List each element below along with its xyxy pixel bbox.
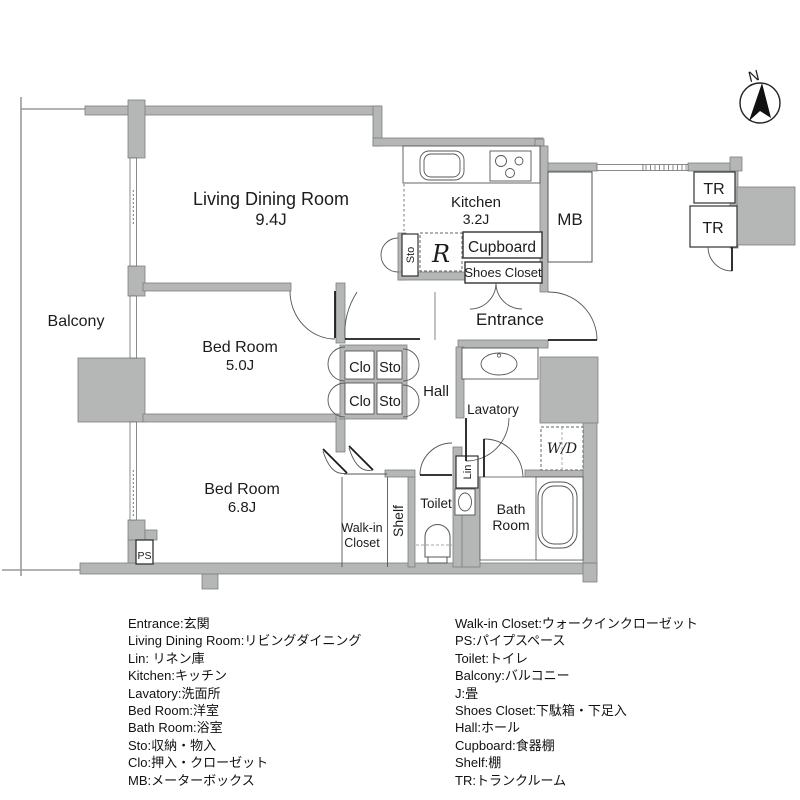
bathroom-label-1: Bath	[497, 501, 526, 517]
bedroom5-size: 5.0J	[226, 357, 254, 374]
legend-item: Balcony:バルコニー	[455, 667, 698, 684]
legend-item: Bath Room:浴室	[128, 719, 361, 736]
shoes-closet-label: Shoes Closet	[464, 265, 542, 280]
hand-basin-icon	[455, 489, 475, 515]
mb-label: MB	[557, 210, 583, 229]
legend-left-column: Entrance:玄関 Living Dining Room:リビングダイニング…	[128, 615, 361, 789]
legend-item: Hall:ホール	[455, 719, 698, 736]
living-dining-label: Living Dining Room	[193, 189, 349, 209]
legend-item: Sto:収納・物入	[128, 737, 361, 754]
entrance-label: Entrance	[476, 310, 544, 329]
trunk-room-gray-block	[737, 187, 795, 245]
compass-north-label: N	[747, 67, 762, 86]
legend-item: Shoes Closet:下駄箱・下足入	[455, 702, 698, 719]
clo-label-top: Clo	[349, 360, 371, 376]
bedroom6-size: 6.8J	[228, 499, 256, 516]
floor-plan-page: Balcony Living Dining Room 9.4J Kitchen …	[0, 0, 800, 800]
refrigerator-label: R	[431, 240, 450, 268]
sto-label-top: Sto	[379, 360, 401, 376]
trunk-room-door-arc	[708, 247, 732, 271]
balcony-outline	[2, 97, 85, 576]
bathroom-label-2: Room	[492, 517, 529, 533]
legend-item: Shelf:棚	[455, 754, 698, 771]
legend-item: Lavatory:洗面所	[128, 685, 361, 702]
kitchen-sto-door-arc	[381, 238, 398, 255]
compass: N	[740, 67, 780, 123]
toilet-icon	[425, 525, 450, 564]
shoes-closet-door-arc	[470, 283, 496, 309]
living-dining-size: 9.4J	[255, 211, 286, 229]
shoes-closet-door-arc	[496, 283, 522, 309]
legend-item: Living Dining Room:リビングダイニング	[128, 632, 361, 649]
bedroom5-door-arc	[290, 291, 335, 339]
lavatory-label: Lavatory	[467, 402, 519, 417]
legend-item: Cupboard:食器棚	[455, 737, 698, 754]
kitchen-sto-label: Sto	[405, 247, 417, 264]
ps-label: PS	[137, 550, 151, 562]
legend-item: Clo:押入・クローゼット	[128, 754, 361, 771]
kitchen-label: Kitchen	[451, 194, 501, 211]
shelf-label: Shelf	[390, 505, 406, 537]
clo-label-bottom: Clo	[349, 394, 371, 410]
legend-item: Kitchen:キッチン	[128, 667, 361, 684]
hall-label: Hall	[423, 383, 449, 400]
toilet-door-arc	[420, 443, 452, 475]
legend-item: TR:トランクルーム	[455, 772, 698, 789]
entrance-door-arc	[548, 292, 597, 340]
kitchen-size: 3.2J	[463, 211, 489, 227]
lin-label: Lin	[462, 465, 474, 480]
kitchen-sto-door-arc	[381, 255, 398, 272]
floor-plan: Balcony Living Dining Room 9.4J Kitchen …	[0, 0, 800, 608]
trunk-room-label-1: TR	[703, 181, 724, 198]
bath-door-arc	[484, 439, 523, 477]
sto-label-bottom: Sto	[379, 394, 401, 410]
trunk-room-label-2: TR	[702, 220, 723, 237]
legend-right-column: Walk-in Closet:ウォークインクローゼット PS:パイプスペース T…	[455, 615, 698, 789]
legend-item: Toilet:トイレ	[455, 650, 698, 667]
toilet-label: Toilet	[420, 496, 452, 511]
washbasin-icon	[462, 348, 538, 379]
bedroom6-label: Bed Room	[204, 481, 280, 498]
legend-item: Lin: リネン庫	[128, 650, 361, 667]
compass-needle-icon	[749, 83, 771, 121]
legend-item: PS:パイプスペース	[455, 632, 698, 649]
legend-item: J:畳	[455, 685, 698, 702]
legend-item: Walk-in Closet:ウォークインクローゼット	[455, 615, 698, 632]
ldk-hall-door-arc	[345, 292, 357, 339]
legend-item: Entrance:玄関	[128, 615, 361, 632]
legend-item: Bed Room:洋室	[128, 702, 361, 719]
legend-item: MB:メーターボックス	[128, 772, 361, 789]
walkin-label-1: Walk-in	[341, 521, 382, 535]
balcony-label: Balcony	[48, 313, 105, 330]
labels: Balcony Living Dining Room 9.4J Kitchen …	[48, 181, 725, 562]
bedroom5-label: Bed Room	[202, 339, 278, 356]
wd-label: W/D	[547, 441, 577, 457]
walkin-label-2: Closet	[344, 536, 380, 550]
cupboard-label: Cupboard	[468, 239, 536, 256]
